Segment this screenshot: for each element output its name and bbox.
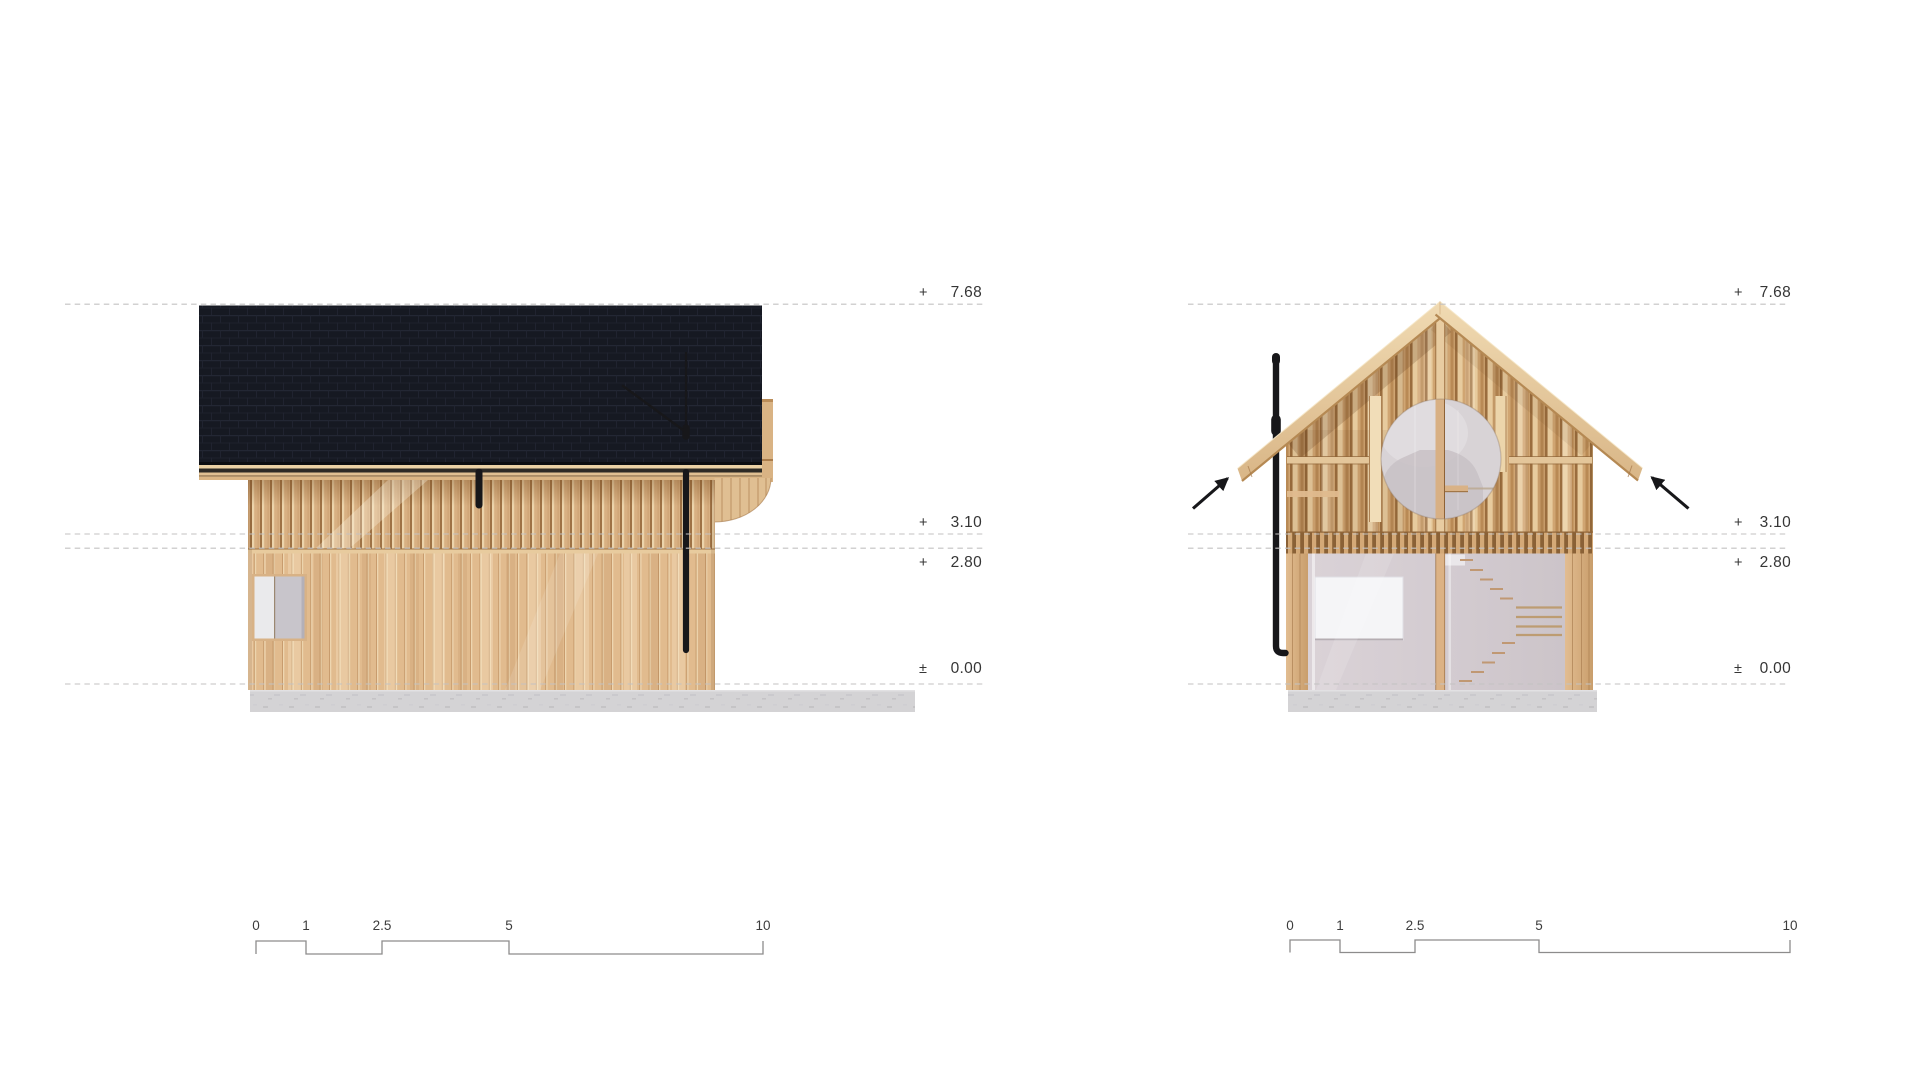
- level-value: 7.68: [951, 284, 982, 302]
- window: [252, 574, 307, 641]
- level-sign: +: [919, 285, 928, 301]
- scale-tick-25-right: 2.5: [1392, 918, 1438, 933]
- level-value: 2.80: [1760, 554, 1791, 572]
- scale-bar-left: [256, 941, 763, 954]
- level-label-768-right: + 7.68: [1734, 284, 1791, 302]
- scale-tick-10-right: 10: [1767, 918, 1813, 933]
- scale-bar-right: [1290, 940, 1790, 953]
- level-sign: +: [919, 515, 928, 531]
- level-sign: +: [1734, 285, 1743, 301]
- level-label-000-right: ± 0.00: [1734, 660, 1791, 678]
- corner-post-right: [1565, 554, 1593, 691]
- scale-tick-1-right: 1: [1317, 918, 1363, 933]
- drawing-sheet: + 7.68 + 3.10 + 2.80 ± 0.00 + 7.68 + 3.1…: [0, 0, 1920, 1080]
- downspout-pipe: [1276, 357, 1286, 653]
- level-label-310-right: + 3.10: [1734, 514, 1791, 532]
- level-value: 7.68: [1760, 284, 1791, 302]
- gutter-end-board: [762, 399, 773, 482]
- slope-arrow-right-icon: [1652, 478, 1689, 509]
- level-sign: ±: [1734, 661, 1742, 677]
- gutter-bracket: [715, 478, 772, 524]
- level-sign: +: [919, 555, 928, 571]
- side-elevation-drawing: [199, 306, 915, 713]
- slope-arrow-left-icon: [1193, 479, 1228, 509]
- centre-mullion: [1436, 554, 1446, 691]
- scale-tick-5-right: 5: [1516, 918, 1562, 933]
- glazed-ground-floor: [1286, 554, 1593, 691]
- level-sign: +: [1734, 515, 1743, 531]
- foundation-slab: [1288, 690, 1597, 712]
- level-label-280-left: + 2.80: [919, 554, 982, 572]
- level-label-280-right: + 2.80: [1734, 554, 1791, 572]
- timber-wall: [248, 480, 715, 690]
- roof-shingles: [199, 306, 762, 466]
- level-value: 3.10: [951, 514, 982, 532]
- scale-tick-1-left: 1: [283, 918, 329, 933]
- corner-post-left: [1286, 554, 1308, 691]
- level-label-310-left: + 3.10: [919, 514, 982, 532]
- scale-tick-25-left: 2.5: [359, 918, 405, 933]
- level-value: 3.10: [1760, 514, 1791, 532]
- foundation-terrace-slab: [250, 690, 915, 712]
- scale-tick-0-left: 0: [233, 918, 279, 933]
- level-label-000-left: ± 0.00: [919, 660, 982, 678]
- level-value: 2.80: [951, 554, 982, 572]
- cross-section-drawing: [1193, 302, 1689, 713]
- scale-tick-5-left: 5: [486, 918, 532, 933]
- scale-tick-0-right: 0: [1267, 918, 1313, 933]
- level-value: 0.00: [951, 660, 982, 678]
- level-sign: ±: [919, 661, 927, 677]
- scale-tick-10-left: 10: [740, 918, 786, 933]
- level-value: 0.00: [1760, 660, 1791, 678]
- round-window: [1380, 399, 1501, 519]
- level-label-768-left: + 7.68: [919, 284, 982, 302]
- level-sign: +: [1734, 555, 1743, 571]
